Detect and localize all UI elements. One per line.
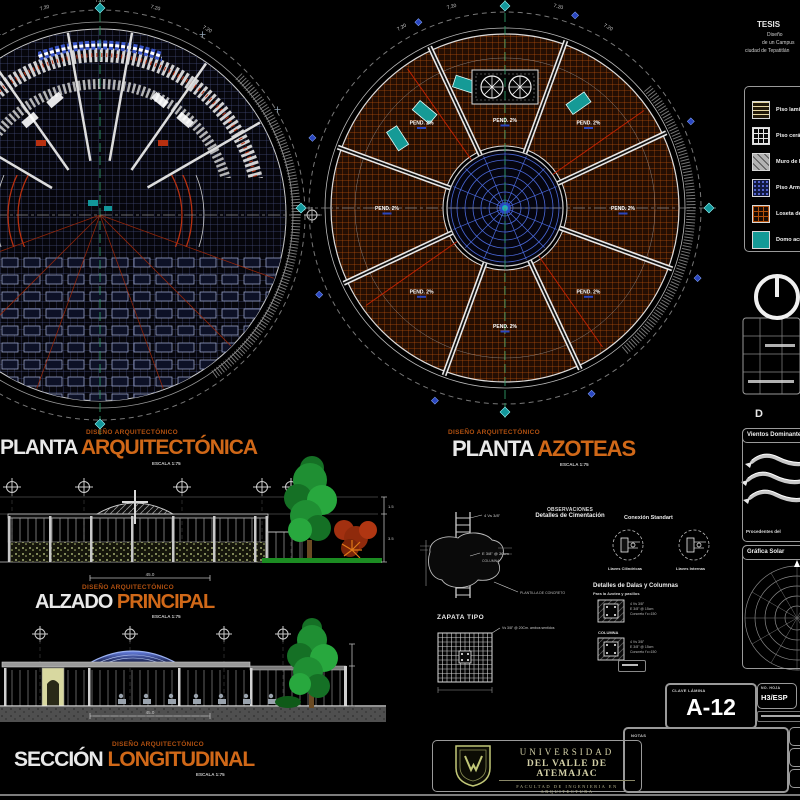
svg-text:PEND. 2%: PEND. 2% [611, 206, 635, 212]
planta-azoteas-title: PLANTA AZOTEAS [452, 436, 635, 462]
cimentacion-detail: 4 Vs 3/8" E 3/8" @ 20cm COLUMNA PLANTILL… [420, 512, 565, 598]
svg-text:Detalles de Dalas y Columnas: Detalles de Dalas y Columnas [593, 583, 679, 589]
planta-arquitectonica-title: PLANTA ARQUITECTÓNICA [0, 436, 257, 460]
sheet-drawing: 7.20 7.20 7.20 7.20 7.20 [0, 0, 800, 800]
alzado-title: ALZADO PRINCIPAL [35, 591, 214, 614]
svg-text:PEND. 2%: PEND. 2% [493, 324, 517, 330]
planta1-overline: DISEÑO ARQUITECTÓNICO [86, 429, 178, 436]
svg-text:Llaves Cilindricas: Llaves Cilindricas [608, 566, 643, 571]
micro-strip [757, 711, 800, 722]
legend-item-piso-armado: Piso Armado [752, 179, 800, 197]
svg-text:PLANTILLA DE CONCRETO: PLANTILLA DE CONCRETO [520, 591, 565, 595]
legend-item-loseta: Loseta de barro [752, 205, 800, 223]
column-bubbles [3, 478, 300, 496]
tesis-title: TESIS [757, 20, 800, 29]
interior-niche [42, 668, 64, 706]
svg-text:7.20: 7.20 [150, 4, 161, 12]
svg-text:7.20: 7.20 [553, 3, 564, 11]
north-symbol-icon [754, 274, 800, 320]
tesis-line: de un Campus [762, 40, 800, 46]
svg-text:3.5: 3.5 [388, 536, 394, 541]
tesis-block: TESIS Diseño de un Campus ciudad de Tepa… [757, 20, 800, 54]
svg-text:4 Vs 3/8": 4 Vs 3/8" [484, 513, 501, 518]
planta-arquitectonica-plan: 7.20 7.20 7.20 7.20 7.20 [0, 0, 322, 435]
university-text: UNIVERSIDAD DEL VALLE DE ATEMAJAC FACULT… [499, 747, 635, 794]
hoja-box: NO. HOJA H3/ESP [757, 683, 797, 709]
svg-text:7.20: 7.20 [39, 4, 50, 12]
svg-text:1.5: 1.5 [388, 504, 394, 509]
legend-item-muro: Muro de block [752, 153, 800, 171]
university-logo-box: UNIVERSIDAD DEL VALLE DE ATEMAJAC FACULT… [432, 740, 642, 792]
tesis-line: Diseño [767, 32, 800, 38]
svg-text:COLUMNA: COLUMNA [482, 559, 500, 563]
dalas-columnas-detail: Detalles de Dalas y Columnas Para la Azo… [593, 583, 679, 660]
planta-azoteas-plan: PEND. 2% PEND. 2% PEND. 2% PEND. 2% PEND… [296, 0, 716, 418]
svg-text:7.20: 7.20 [201, 25, 213, 35]
svg-text:PEND. 2%: PEND. 2% [410, 121, 434, 127]
piso-laminado-swatch-icon [752, 101, 770, 119]
legend-item-piso-laminado: Piso laminado [752, 101, 800, 119]
svg-text:7.20: 7.20 [396, 22, 408, 32]
notes-box: NOTAS [623, 727, 789, 793]
university-line3: FACULTAD DE INGENIERIA EN ARQUITECTURA [499, 784, 635, 794]
planta1-scale: ESCALA 1:75 [152, 461, 181, 466]
cimentacion-subtitle: Detalles de Cimentación [515, 513, 625, 519]
svg-text:PEND. 2%: PEND. 2% [375, 206, 399, 212]
vientos-caption: Procedentes del [746, 529, 781, 534]
sheet-number-label: CLAVE LÁMINA [672, 688, 706, 693]
svg-text:PEND. 2%: PEND. 2% [576, 289, 600, 295]
svg-text:Llaves Internas: Llaves Internas [676, 566, 706, 571]
piso-armado-swatch-icon [752, 179, 770, 197]
svg-text:Conexión Standart: Conexión Standart [624, 515, 673, 521]
svg-text:Concreto f'c=150: Concreto f'c=150 [630, 650, 657, 654]
observaciones-heading: OBSERVACIONES Detalles de Cimentación [515, 507, 625, 519]
seccion-title: SECCIÓN LONGITUDINAL [14, 748, 254, 772]
cad-sheet: 7.20 7.20 7.20 7.20 7.20 [0, 0, 800, 800]
seccion-drawing: 45.0 [0, 618, 386, 722]
hoja-value: H3/ESP [761, 693, 788, 702]
svg-text:PEND. 2%: PEND. 2% [410, 289, 434, 295]
column-bubbles [32, 626, 291, 642]
svg-text:7.20: 7.20 [446, 3, 457, 11]
university-shield-icon [453, 744, 493, 788]
svg-text:PEND. 2%: PEND. 2% [493, 118, 517, 124]
svg-text:45.0: 45.0 [146, 572, 155, 577]
university-line2: DEL VALLE DE ATEMAJAC [499, 759, 635, 781]
seccion-overline: DISEÑO ARQUITECTÓNICO [112, 741, 204, 748]
planta2-scale: ESCALA 1:75 [560, 462, 589, 467]
svg-text:Para la Azotea y pasillos: Para la Azotea y pasillos [593, 591, 640, 596]
alzado-drawing: 1.5 3.5 45.0 [0, 456, 394, 581]
loseta-swatch-icon [752, 205, 770, 223]
hoja-label: NO. HOJA [761, 686, 780, 690]
svg-text:Concreto f'c=150: Concreto f'c=150 [630, 612, 657, 616]
side-box-2 [789, 748, 800, 767]
conexion-detail: Conexión Standart Llaves Cilindricas Lla… [608, 515, 709, 571]
mini-detail-box [618, 660, 646, 672]
svg-text:4 Vs 3/8": 4 Vs 3/8" [630, 602, 645, 606]
north-table [743, 318, 800, 394]
tesis-line: ciudad de Tepatitlán [745, 48, 800, 54]
grafica-solar-title: Gráfica Solar [747, 549, 784, 555]
university-line1: UNIVERSIDAD [499, 747, 635, 757]
planta2-overline: DISEÑO ARQUITECTÓNICO [448, 429, 540, 436]
svg-text:7.20: 7.20 [602, 23, 614, 33]
domo-swatch-icon [752, 231, 770, 249]
alzado-overline: DISEÑO ARQUITECTÓNICO [82, 584, 174, 591]
ground-strip [262, 558, 382, 563]
side-box-1 [789, 727, 800, 746]
svg-text:7.20: 7.20 [95, 0, 105, 4]
seccion-scale: ESCALA 1:75 [196, 772, 225, 777]
bush-elevation [334, 520, 377, 558]
legend-item-domo: Domo acrílico [752, 231, 800, 249]
svg-text:45.0: 45.0 [146, 710, 155, 715]
muro-swatch-icon [752, 153, 770, 171]
svg-text:E 3/8" @ 20cm: E 3/8" @ 20cm [482, 551, 509, 556]
zapata-tipo-label: ZAPATA TIPO [437, 614, 484, 621]
grafica-solar-box: Gráfica Solar [742, 545, 800, 669]
vientos-title: Vientos Dominantes [747, 432, 800, 438]
svg-text:4 Vs 3/8": 4 Vs 3/8" [630, 640, 645, 644]
vientos-box: Vientos Dominantes Procedentes del [742, 428, 800, 542]
seating-rows [0, 252, 300, 412]
legend-item-piso-ceramico: Piso cerámico [752, 127, 800, 145]
bottom-rule [0, 794, 800, 796]
svg-text:COLUMNA: COLUMNA [598, 630, 619, 635]
alzado-scale: ESCALA 1:75 [152, 614, 181, 619]
svg-text:Vs 3/8" @ 20Cm. ambos sentidos: Vs 3/8" @ 20Cm. ambos sentidos [502, 626, 555, 630]
piso-ceramico-swatch-icon [752, 127, 770, 145]
svg-text:E 3/8" @ 15cm: E 3/8" @ 15cm [630, 607, 654, 611]
legend-box: Piso laminado Piso cerámico Muro de bloc… [744, 86, 800, 252]
sheet-number-box: CLAVE LÁMINA A-12 [665, 683, 757, 729]
zapata-detail: Vs 3/8" @ 20Cm. ambos sentidos [438, 626, 555, 693]
panel-d-heading: D [755, 408, 763, 420]
side-box-3 [789, 769, 800, 788]
svg-text:PEND. 2%: PEND. 2% [576, 121, 600, 127]
notes-label: NOTAS [631, 733, 646, 738]
sheet-number-value: A-12 [667, 694, 755, 721]
svg-text:E 3/8" @ 15cm: E 3/8" @ 15cm [630, 645, 654, 649]
